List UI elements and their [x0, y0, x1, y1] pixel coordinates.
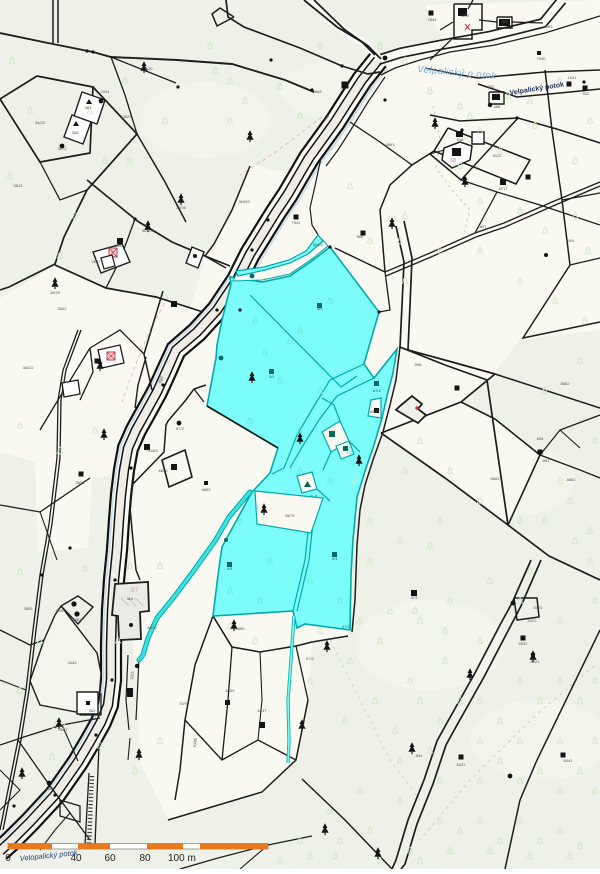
svg-text:468: 468	[494, 104, 501, 109]
svg-text:34/22: 34/22	[35, 120, 46, 125]
svg-text:7940: 7940	[537, 56, 547, 61]
svg-text:3662: 3662	[73, 617, 83, 622]
svg-text:7844: 7844	[428, 17, 438, 22]
svg-text:8679: 8679	[286, 513, 296, 518]
svg-text:8670: 8670	[148, 625, 158, 630]
svg-text:8632: 8632	[519, 641, 529, 646]
svg-text:3602: 3602	[58, 306, 68, 311]
svg-text:8439: 8439	[226, 688, 236, 693]
svg-text:3655: 3655	[24, 606, 34, 611]
svg-text:3630: 3630	[144, 66, 154, 71]
svg-text:3/64: 3/64	[461, 13, 470, 18]
svg-text:473: 473	[411, 595, 418, 600]
svg-text:8820: 8820	[159, 468, 169, 473]
svg-text:80: 80	[139, 853, 151, 864]
svg-text:861/1: 861/1	[313, 242, 324, 247]
svg-text:70/95: 70/95	[192, 737, 198, 748]
svg-text:4093: 4093	[544, 24, 554, 29]
svg-text:8663: 8663	[491, 476, 501, 481]
svg-text:648: 648	[457, 137, 464, 142]
svg-text:7542: 7542	[292, 220, 302, 225]
svg-text:2607: 2607	[92, 259, 102, 264]
svg-text:8422: 8422	[528, 618, 538, 623]
svg-text:367: 367	[85, 105, 92, 110]
svg-text:3660: 3660	[46, 786, 56, 791]
svg-text:3660: 3660	[56, 608, 66, 613]
svg-text:7548/1: 7548/1	[146, 448, 159, 453]
svg-text:8421: 8421	[531, 659, 541, 664]
svg-text:36093: 36093	[238, 199, 250, 204]
svg-text:8717: 8717	[499, 186, 509, 191]
svg-text:8862: 8862	[561, 381, 571, 386]
svg-text:891: 891	[543, 458, 550, 463]
svg-text:36/29: 36/29	[50, 290, 61, 295]
svg-text:3629: 3629	[123, 114, 133, 119]
svg-text:8437: 8437	[258, 708, 268, 713]
svg-text:8861: 8861	[386, 142, 396, 147]
svg-text:40: 40	[70, 853, 82, 864]
svg-text:36320: 36320	[114, 243, 126, 248]
svg-text:87/2: 87/2	[176, 426, 185, 431]
svg-text:865: 865	[357, 234, 364, 239]
svg-text:36/36: 36/36	[176, 205, 187, 210]
svg-text:60: 60	[104, 853, 116, 864]
svg-text:87/2: 87/2	[373, 388, 382, 393]
svg-text:800: 800	[502, 19, 509, 24]
svg-text:8861: 8861	[567, 477, 577, 482]
svg-text:8859: 8859	[236, 626, 246, 631]
svg-text:3653: 3653	[76, 480, 86, 485]
svg-text:MA: MA	[127, 596, 133, 601]
svg-text:200: 200	[488, 84, 495, 89]
svg-text:87: 87	[131, 587, 139, 594]
svg-text:8892: 8892	[202, 487, 212, 492]
svg-text:87/2: 87/2	[342, 624, 351, 629]
svg-text:1801: 1801	[478, 224, 488, 229]
svg-text:368: 368	[72, 130, 79, 135]
svg-text:8422: 8422	[534, 605, 544, 610]
svg-text:88/1: 88/1	[370, 409, 379, 414]
svg-text:3613: 3613	[14, 183, 24, 188]
svg-text:70/95: 70/95	[179, 701, 190, 706]
svg-text:0: 0	[5, 853, 11, 864]
svg-text:1941: 1941	[568, 75, 578, 80]
svg-text:100 m: 100 m	[168, 853, 196, 864]
svg-text:69/4: 69/4	[566, 238, 575, 243]
svg-text:3868: 3868	[313, 89, 323, 94]
svg-text:8437: 8437	[457, 762, 467, 767]
svg-text:822: 822	[583, 91, 590, 96]
svg-text:3657: 3657	[59, 727, 69, 732]
svg-text:360: 360	[89, 708, 96, 713]
svg-text:3443: 3443	[68, 660, 78, 665]
svg-text:3632/1: 3632/1	[142, 228, 155, 233]
svg-text:36212: 36212	[22, 365, 34, 370]
svg-text:8441: 8441	[564, 758, 574, 763]
svg-text:898: 898	[537, 436, 544, 441]
svg-text:1921: 1921	[129, 670, 135, 680]
svg-text:68: 68	[450, 158, 456, 164]
svg-text:3872: 3872	[58, 146, 68, 151]
svg-text:8/1: 8/1	[269, 374, 275, 379]
svg-text:2024: 2024	[101, 89, 111, 94]
svg-text:598: 598	[415, 362, 422, 367]
svg-text:844: 844	[416, 753, 423, 758]
svg-text:87/2: 87/2	[306, 656, 315, 661]
svg-text:9112: 9112	[493, 153, 502, 158]
